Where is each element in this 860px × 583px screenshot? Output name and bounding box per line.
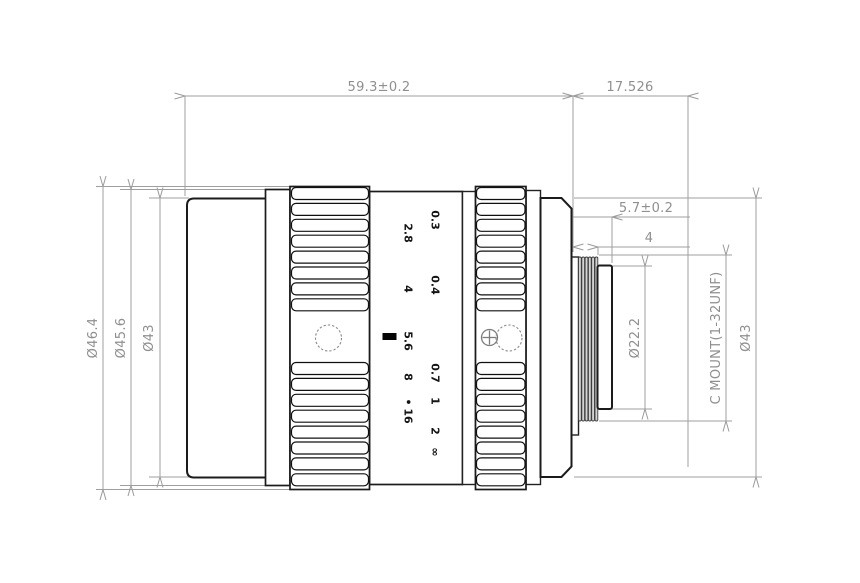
focus-scale-value: 0.4: [428, 275, 441, 295]
dim-thread-length-label: 4: [645, 231, 654, 246]
dim-dia-pilot-label: Ø22.2: [628, 318, 643, 359]
aperture-scale-value: 2.8: [401, 223, 414, 243]
aperture-scale-value: 4: [401, 285, 414, 293]
dim-dia-front-max-label: Ø46.4: [86, 318, 101, 359]
focus-scale-value: 2: [428, 427, 441, 435]
dim-rear-protrusion-label: 5.7±0.2: [619, 201, 673, 216]
rear-block: [541, 198, 572, 477]
focus-scale-value: ∞: [428, 447, 441, 456]
rear-collar: [526, 191, 541, 485]
focus-scale-value: 1: [428, 397, 441, 405]
aperture-index-mark: [383, 333, 397, 340]
aperture-scale-dot: •: [401, 398, 414, 405]
lens-outline-drawing: 59.3±0.2 17.526 5.7±0.2 4 Ø46.4 Ø45.6 Ø4…: [0, 0, 860, 583]
front-barrel: [187, 199, 266, 478]
aperture-scale-value: 8: [401, 373, 414, 381]
dim-dia-ring-label: Ø45.6: [114, 318, 129, 359]
technical-drawing-canvas: 59.3±0.2 17.526 5.7±0.2 4 Ø46.4 Ø45.6 Ø4…: [0, 0, 860, 583]
dim-dia-rear-body-label: Ø43: [739, 324, 754, 352]
phillips-screw-icon: [482, 330, 498, 346]
focus-scale-value: 0.7: [428, 363, 441, 383]
focus-scale-value: 0.3: [428, 210, 441, 230]
aperture-scale-value: 16: [401, 408, 414, 424]
lens-body: [187, 187, 612, 490]
dim-total-length-label: 59.3±0.2: [348, 80, 411, 95]
dim-flange-distance-label: 17.526: [606, 80, 653, 95]
pilot-tube: [598, 266, 613, 410]
focus-collar: [463, 192, 476, 485]
mount-threads: [579, 257, 598, 421]
front-collar: [266, 190, 291, 486]
aperture-scale-value: 5.6: [401, 331, 414, 351]
dim-mount-spec-label: C MOUNT(1-32UNF): [709, 271, 724, 404]
dim-dia-front-barrel-label: Ø43: [142, 324, 157, 352]
